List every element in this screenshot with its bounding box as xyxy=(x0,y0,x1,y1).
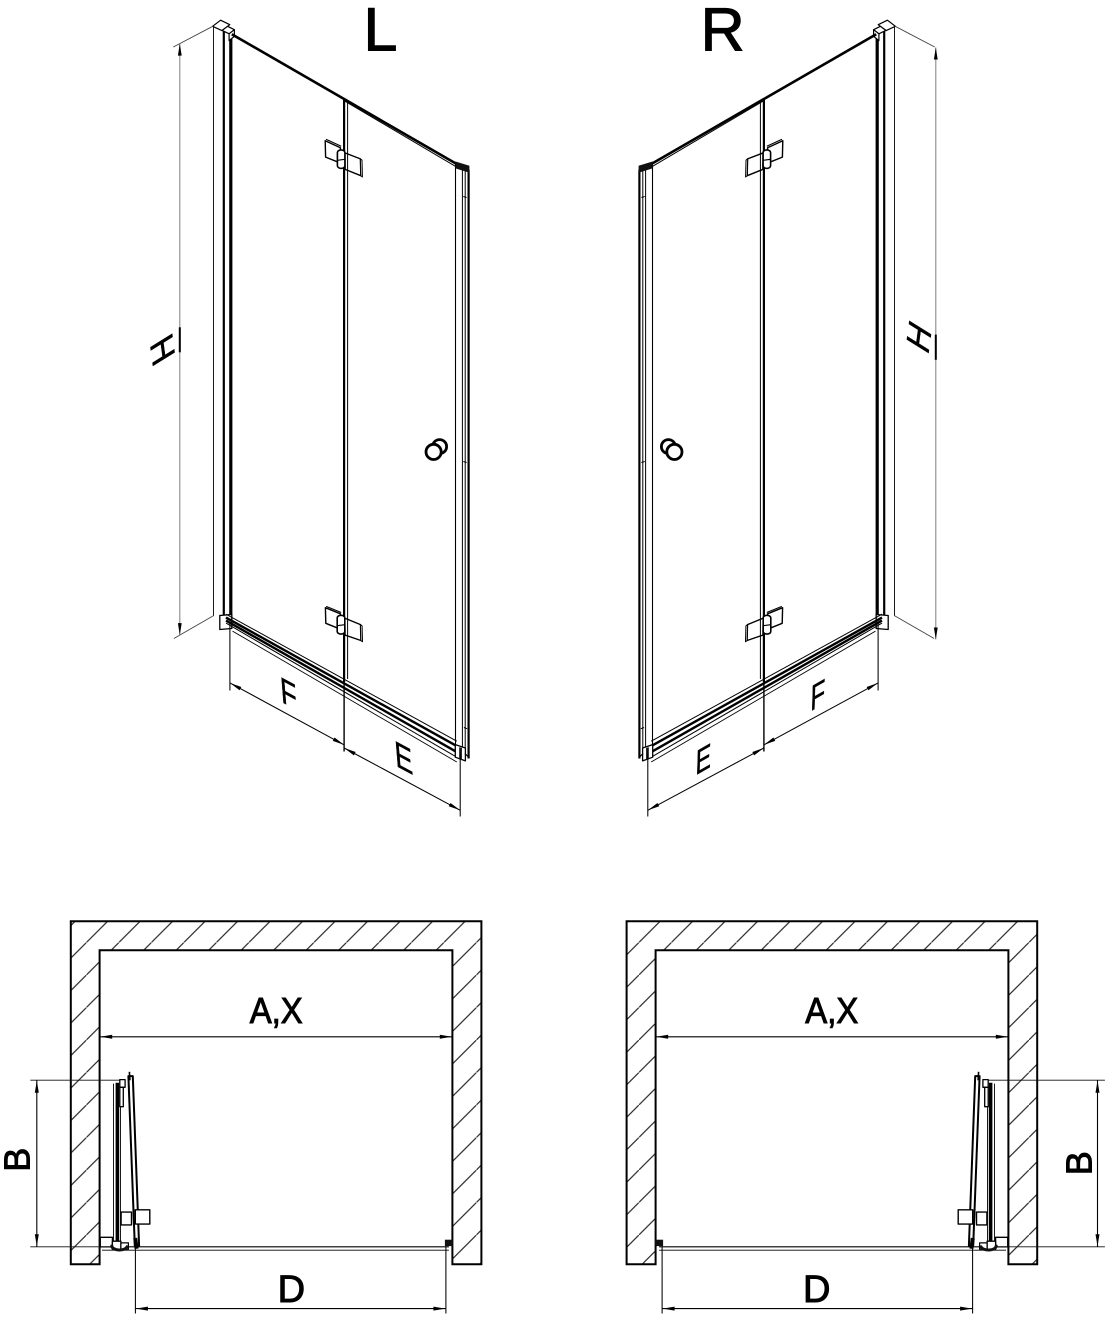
svg-text:D: D xyxy=(803,1269,830,1311)
svg-text:D: D xyxy=(278,1269,305,1311)
svg-text:A,X: A,X xyxy=(805,990,858,1031)
svg-text:R: R xyxy=(701,0,745,64)
svg-text:B: B xyxy=(1059,1151,1100,1175)
svg-text:B: B xyxy=(0,1148,37,1172)
svg-text:L: L xyxy=(364,0,398,64)
svg-text:A,X: A,X xyxy=(250,990,303,1031)
